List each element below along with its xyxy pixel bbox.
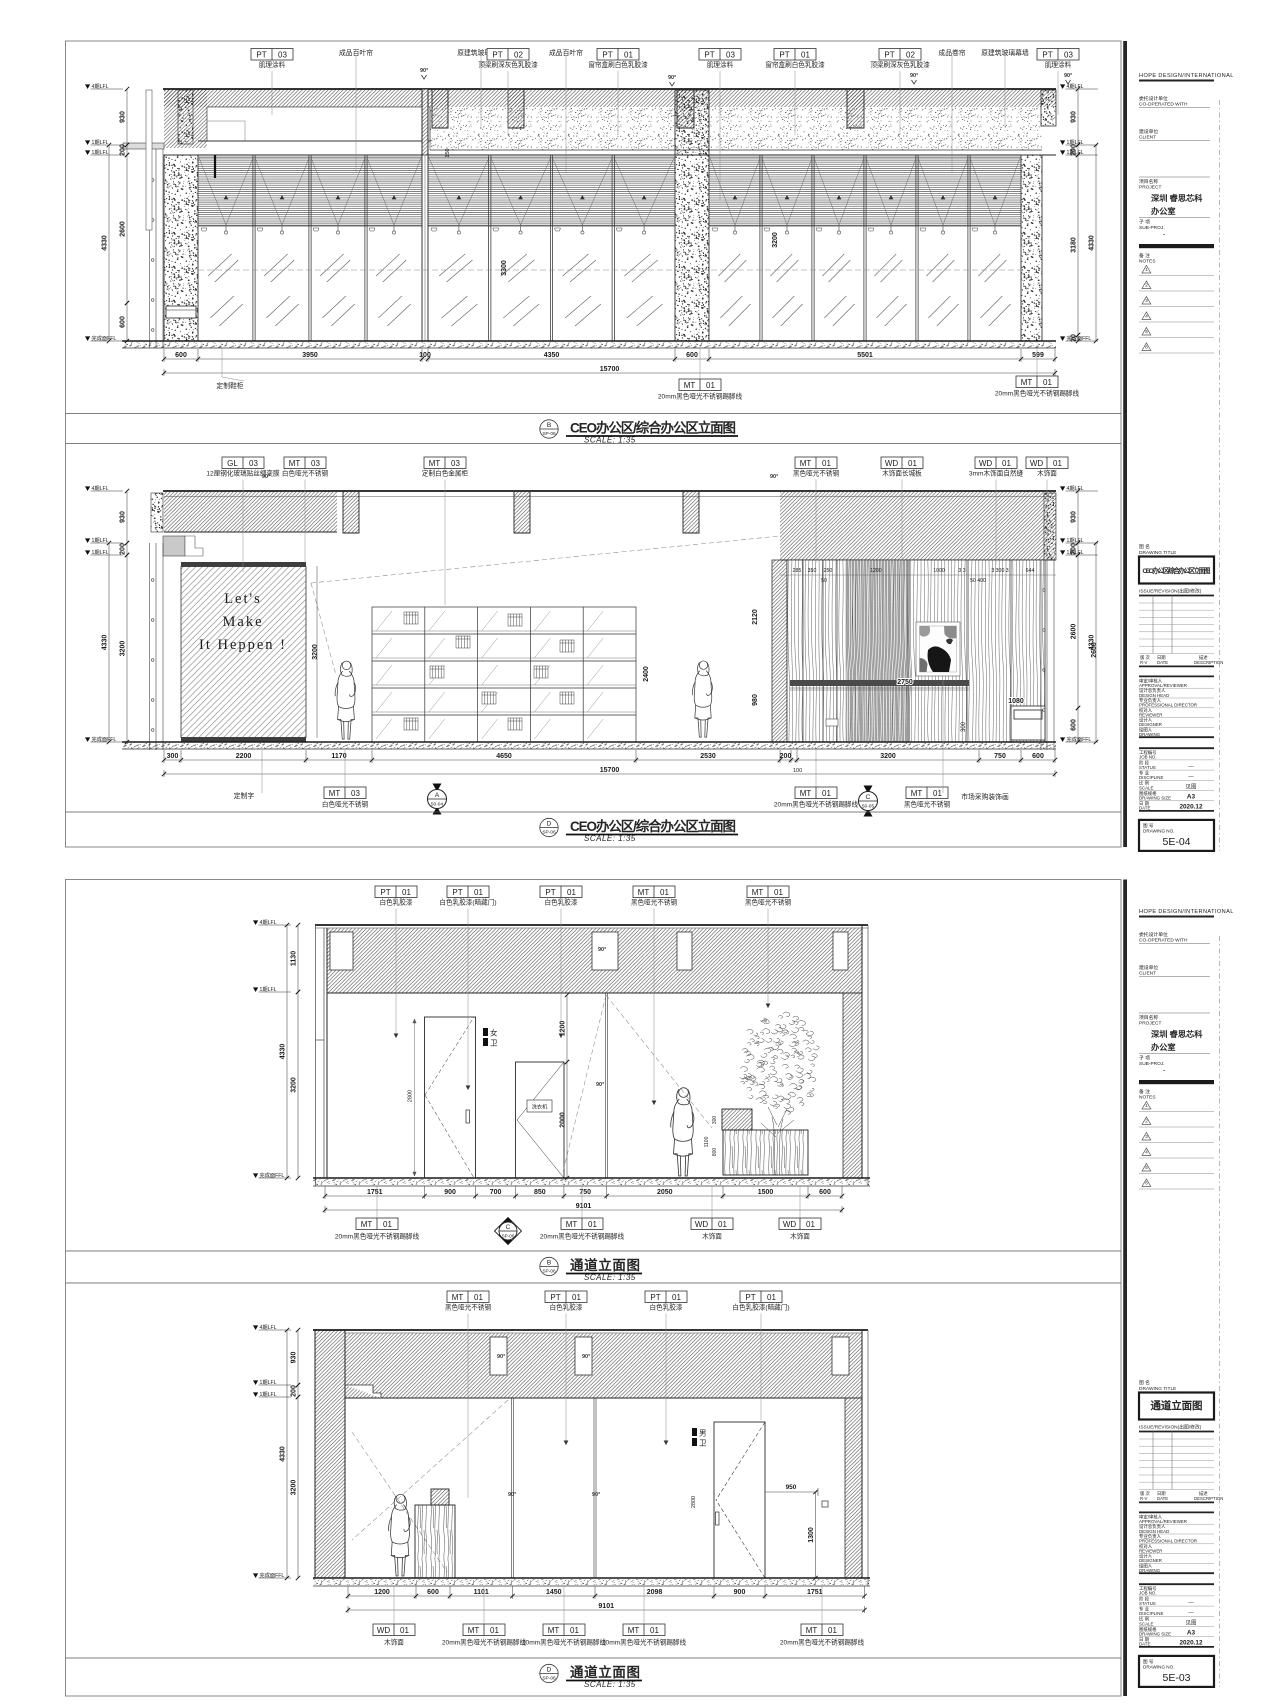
svg-text:PT: PT (452, 888, 462, 897)
svg-text:5501: 5501 (857, 352, 873, 359)
svg-text:3mm木饰面自然缝: 3mm木饰面自然缝 (969, 469, 1024, 478)
svg-text:洗衣机: 洗衣机 (532, 1103, 548, 1111)
svg-text:01: 01 (402, 888, 411, 897)
svg-text:DISCIPLINE: DISCIPLINE (1139, 775, 1163, 780)
svg-text:90°: 90° (262, 474, 270, 480)
svg-text:2800: 2800 (408, 1090, 414, 1102)
svg-text:600: 600 (819, 1189, 831, 1196)
svg-text:PT: PT (745, 1293, 755, 1302)
svg-text:SP-06: SP-06 (542, 1269, 556, 1275)
svg-text:卫: 卫 (699, 1439, 707, 1448)
svg-text:3200: 3200 (291, 1077, 298, 1093)
svg-text:2050: 2050 (657, 1189, 673, 1196)
svg-text:20mm黑色哑光不锈钢踢脚线: 20mm黑色哑光不锈钢踢脚线 (780, 1638, 865, 1647)
svg-text:顶梁刷深灰色乳胶漆: 顶梁刷深灰色乳胶漆 (870, 60, 930, 69)
svg-text:B: B (547, 422, 551, 429)
svg-text:90°: 90° (582, 1354, 590, 1360)
svg-text:MT: MT (452, 1293, 464, 1302)
svg-text:PT: PT (545, 888, 555, 897)
svg-text:01: 01 (588, 1220, 597, 1229)
svg-text:MT: MT (548, 1626, 560, 1635)
svg-text:定制鞋柜: 定制鞋柜 (216, 381, 243, 390)
svg-text:DESCRIPTION: DESCRIPTION (1194, 1496, 1223, 1501)
svg-text:2098: 2098 (647, 1589, 663, 1596)
svg-text:DRAWING TITLE: DRAWING TITLE (1139, 1386, 1176, 1392)
svg-text:600: 600 (1071, 719, 1078, 731)
svg-text:MT: MT (638, 888, 650, 897)
svg-text:DATE: DATE (1139, 806, 1150, 811)
svg-text:01: 01 (706, 381, 715, 390)
svg-text:950: 950 (786, 1484, 797, 1491)
svg-text:01: 01 (567, 888, 576, 897)
svg-text:NOTES: NOTES (1139, 259, 1156, 265)
svg-text:子 项: 子 项 (1139, 1055, 1150, 1062)
svg-text:ISSUE/REVISION(出图/修改): ISSUE/REVISION(出图/修改) (1139, 588, 1202, 595)
svg-text:900: 900 (444, 1189, 456, 1196)
svg-text:01: 01 (570, 1626, 579, 1635)
svg-text:20mm黑色哑光不锈钢踢脚线: 20mm黑色哑光不锈钢踢脚线 (442, 1638, 527, 1647)
svg-text:DESCRIPTION: DESCRIPTION (1194, 660, 1223, 665)
svg-text:DRAWING NO.: DRAWING NO. (1143, 828, 1174, 833)
svg-text:2120: 2120 (752, 609, 759, 625)
svg-text:03: 03 (726, 50, 735, 59)
svg-text:办公室: 办公室 (1151, 1042, 1176, 1052)
svg-text:4650: 4650 (496, 753, 512, 760)
svg-text:肌理涂料: 肌理涂料 (707, 60, 734, 69)
svg-text:HOPE DESIGN/INTERNATIONAL: HOPE DESIGN/INTERNATIONAL (1139, 73, 1234, 79)
svg-text:01: 01 (822, 459, 831, 468)
svg-text:3200: 3200 (772, 232, 779, 248)
svg-text:4350: 4350 (544, 352, 560, 359)
svg-text:2600: 2600 (120, 221, 127, 237)
svg-text:01: 01 (672, 1293, 681, 1302)
svg-text:黑色哑光不锈钢: 黑色哑光不锈钢 (631, 898, 678, 907)
svg-text:委托设计单位: 委托设计单位 (1139, 95, 1168, 102)
svg-text:WD: WD (783, 1220, 797, 1229)
svg-text:200: 200 (120, 144, 127, 156)
svg-text:03: 03 (351, 789, 360, 798)
svg-text:白色乳胶漆(暗藏门): 白色乳胶漆(暗藏门) (439, 898, 496, 907)
svg-text:3300: 3300 (501, 260, 508, 276)
svg-text:01: 01 (774, 888, 783, 897)
svg-text:930: 930 (291, 1352, 298, 1364)
svg-text:200: 200 (1071, 144, 1078, 156)
svg-text:卫: 卫 (490, 1039, 498, 1048)
svg-text:项目名称: 项目名称 (1139, 178, 1158, 185)
svg-text:通道立面图: 通道立面图 (570, 1257, 640, 1273)
svg-text:木饰面长城板: 木饰面长城板 (882, 469, 922, 478)
svg-text:通道立面图: 通道立面图 (570, 1664, 640, 1680)
svg-text:930: 930 (1071, 511, 1078, 523)
svg-text:20mm黑色哑光不锈钢踢脚线: 20mm黑色哑光不锈钢踢脚线 (540, 1232, 625, 1241)
svg-text:DRAWING SIZE: DRAWING SIZE (1139, 796, 1171, 801)
svg-text:B: B (547, 1260, 551, 1267)
svg-text:CO-OPERATED WITH: CO-OPERATED WITH (1139, 102, 1188, 108)
svg-text:白色哑光不锈钢: 白色哑光不锈钢 (322, 800, 369, 809)
svg-text:1500: 1500 (758, 1189, 774, 1196)
svg-text:白色乳胶漆(暗藏门): 白色乳胶漆(暗藏门) (732, 1303, 789, 1312)
svg-text:01: 01 (822, 789, 831, 798)
svg-text:20mm黑色哑光不锈钢踢脚线: 20mm黑色哑光不锈钢踢脚线 (774, 800, 859, 809)
svg-text:01: 01 (400, 1626, 409, 1635)
svg-text:SUB-PROJ.: SUB-PROJ. (1139, 1061, 1165, 1067)
svg-text:01: 01 (1053, 459, 1062, 468)
svg-text:PT: PT (602, 50, 612, 59)
svg-text:4330: 4330 (280, 1044, 287, 1060)
svg-text:DRAWING: DRAWING (1139, 732, 1161, 737)
svg-text:980: 980 (752, 694, 759, 706)
svg-text:01: 01 (1002, 459, 1011, 468)
svg-text:MT: MT (752, 888, 764, 897)
svg-text:150: 150 (445, 148, 451, 157)
svg-text:3200: 3200 (120, 641, 127, 657)
svg-text:—: — (1188, 1610, 1194, 1616)
svg-text:4330: 4330 (1089, 635, 1096, 651)
svg-text:1200: 1200 (374, 1589, 390, 1596)
svg-text:600: 600 (1032, 753, 1044, 760)
svg-text:01: 01 (490, 1626, 499, 1635)
svg-text:PT: PT (256, 50, 266, 59)
svg-text:—: — (1188, 774, 1194, 780)
svg-text:女: 女 (490, 1028, 498, 1038)
svg-text:285: 285 (793, 568, 802, 574)
svg-text:见图: 见图 (1186, 1618, 1197, 1626)
svg-text:通道立面图: 通道立面图 (1151, 1399, 1203, 1412)
svg-text:03: 03 (1064, 50, 1073, 59)
svg-text:01: 01 (383, 1220, 392, 1229)
svg-text:PT: PT (492, 50, 502, 59)
svg-text:2020.12: 2020.12 (1179, 804, 1203, 811)
svg-text:3 3: 3 3 (958, 568, 965, 574)
svg-text:5E-03: 5E-03 (1162, 1672, 1190, 1684)
svg-text:DATE: DATE (1139, 1642, 1150, 1647)
svg-text:01: 01 (660, 888, 669, 897)
svg-text:300: 300 (712, 1116, 718, 1125)
svg-text:1130: 1130 (291, 951, 298, 966)
svg-text:SCALE: SCALE (1139, 785, 1153, 790)
svg-text:子 项: 子 项 (1139, 219, 1150, 226)
svg-text:1170: 1170 (331, 753, 346, 760)
svg-text:男: 男 (699, 1429, 707, 1438)
svg-text:C: C (866, 794, 871, 801)
svg-text:项目名称: 项目名称 (1139, 1014, 1158, 1021)
svg-text:15700: 15700 (600, 366, 620, 373)
svg-text:白色乳胶漆: 白色乳胶漆 (545, 898, 578, 907)
svg-text:4330: 4330 (102, 635, 109, 651)
svg-text:建设单位: 建设单位 (1139, 964, 1158, 971)
svg-text:01: 01 (572, 1293, 581, 1302)
svg-text:市场采购装饰画: 市场采购装饰画 (961, 792, 1009, 801)
svg-text:—: — (1188, 764, 1194, 770)
svg-text:PT: PT (550, 1293, 560, 1302)
svg-text:MT: MT (289, 459, 301, 468)
svg-text:20: 20 (1071, 334, 1078, 342)
svg-text:深圳 睿思芯科: 深圳 睿思芯科 (1151, 1029, 1203, 1039)
svg-text:SP-06: SP-06 (502, 1234, 515, 1239)
svg-text:SP-06: SP-06 (542, 431, 556, 437)
svg-text:黑色哑光不锈钢: 黑色哑光不锈钢 (904, 800, 951, 809)
svg-text:3950: 3950 (302, 352, 318, 359)
svg-text:SUB-PROJ.: SUB-PROJ. (1139, 225, 1165, 231)
svg-text:SCALE: SCALE (1139, 1621, 1153, 1626)
svg-text:STATUS: STATUS (1139, 765, 1156, 770)
svg-text:A3: A3 (1187, 794, 1196, 801)
svg-text:PT: PT (380, 888, 390, 897)
svg-text:02: 02 (514, 50, 523, 59)
svg-text:ISSUE/REVISION(出图/修改): ISSUE/REVISION(出图/修改) (1139, 1424, 1202, 1431)
svg-text:顶梁刷深灰色乳胶漆: 顶梁刷深灰色乳胶漆 (478, 60, 538, 69)
svg-text:见图: 见图 (1186, 782, 1197, 790)
svg-text:DRAWING NO.: DRAWING NO. (1143, 1664, 1174, 1669)
svg-text:01: 01 (801, 50, 810, 59)
svg-text:黑色哑光不锈钢: 黑色哑光不锈钢 (793, 469, 840, 478)
svg-text:WD: WD (1030, 459, 1044, 468)
svg-text:备 注: 备 注 (1139, 252, 1150, 259)
svg-text:15700: 15700 (600, 767, 620, 774)
svg-text:2800: 2800 (691, 1496, 697, 1508)
svg-text:—: — (1188, 1600, 1194, 1606)
svg-text:A: A (435, 792, 440, 799)
svg-text:MT: MT (429, 459, 441, 468)
svg-text:1751: 1751 (367, 1189, 383, 1196)
svg-text:90°: 90° (592, 1492, 600, 1498)
svg-text:2530: 2530 (700, 753, 716, 760)
svg-text:DRAWING TITLE: DRAWING TITLE (1139, 550, 1176, 556)
svg-text:300: 300 (167, 753, 179, 760)
svg-text:9101: 9101 (576, 1203, 592, 1210)
svg-text:20mm黑色哑光不锈钢踢脚线: 20mm黑色哑光不锈钢踢脚线 (658, 392, 743, 401)
svg-text:930: 930 (120, 111, 127, 123)
svg-text:4330: 4330 (280, 1446, 287, 1462)
svg-text:20mm黑色哑光不锈钢踢脚线: 20mm黑色哑光不锈钢踢脚线 (995, 389, 1080, 398)
svg-text:DATE: DATE (1157, 660, 1168, 665)
svg-text:MT: MT (329, 789, 341, 798)
svg-text:750: 750 (579, 1189, 591, 1196)
svg-text:50-04: 50-04 (431, 802, 444, 808)
svg-text:PROJECT: PROJECT (1139, 185, 1161, 191)
svg-text:90°: 90° (596, 1082, 604, 1088)
svg-text:1000: 1000 (933, 568, 945, 574)
svg-text:90°: 90° (668, 75, 676, 81)
svg-text:3 300 3: 3 300 3 (991, 568, 1008, 574)
svg-text:1200: 1200 (870, 568, 882, 574)
svg-text:1751: 1751 (807, 1589, 823, 1596)
svg-text:200: 200 (120, 543, 127, 555)
svg-text:700: 700 (490, 1189, 502, 1196)
svg-text:CEO办公区/综合办公区立面图: CEO办公区/综合办公区立面图 (570, 420, 736, 436)
svg-text:白色哑光不锈钢: 白色哑光不锈钢 (282, 469, 329, 478)
svg-text:644: 644 (1026, 568, 1035, 574)
svg-text:50-05: 50-05 (862, 804, 875, 810)
svg-text:MT: MT (628, 1626, 640, 1635)
svg-text:MT: MT (566, 1220, 578, 1229)
svg-text:定制字: 定制字 (234, 791, 255, 800)
svg-text:Let's: Let's (224, 591, 262, 607)
svg-text:900: 900 (734, 1589, 746, 1596)
svg-text:03: 03 (278, 50, 287, 59)
svg-text:HOPE DESIGN/INTERNATIONAL: HOPE DESIGN/INTERNATIONAL (1139, 909, 1234, 915)
svg-text:建设单位: 建设单位 (1139, 128, 1158, 135)
svg-text:WD: WD (979, 459, 993, 468)
svg-text:肌理涂料: 肌理涂料 (259, 60, 286, 69)
svg-text:STATUS: STATUS (1139, 1601, 1156, 1606)
svg-text:MT: MT (800, 459, 812, 468)
svg-text:750: 750 (994, 753, 1006, 760)
svg-text:CLIENT: CLIENT (1139, 135, 1156, 141)
svg-text:C: C (506, 1224, 511, 1231)
svg-text:2000: 2000 (560, 1112, 567, 1128)
svg-text:MT: MT (911, 789, 923, 798)
svg-text:图 名: 图 名 (1139, 543, 1150, 550)
svg-text:90°: 90° (420, 68, 428, 74)
svg-text:Make: Make (222, 614, 263, 630)
svg-text:木饰面: 木饰面 (1037, 469, 1057, 478)
svg-text:600: 600 (175, 352, 187, 359)
svg-text:01: 01 (767, 1293, 776, 1302)
svg-text:PT: PT (650, 1293, 660, 1302)
svg-text:PROJECT: PROJECT (1139, 1021, 1161, 1027)
svg-text:600: 600 (120, 316, 127, 328)
svg-text:PT: PT (704, 50, 714, 59)
svg-text:90°: 90° (910, 73, 918, 79)
svg-text:03: 03 (451, 459, 460, 468)
svg-text:20mm黑色哑光不锈钢踢脚线: 20mm黑色哑光不锈钢踢脚线 (602, 1638, 687, 1647)
svg-text:MT: MT (684, 381, 696, 390)
svg-text:NOTES: NOTES (1139, 1095, 1156, 1101)
svg-text:850: 850 (534, 1189, 546, 1196)
svg-text:600: 600 (427, 1589, 439, 1596)
svg-text:1080: 1080 (1008, 698, 1024, 705)
svg-text:PT: PT (1042, 50, 1052, 59)
svg-text:R-V: R-V (1140, 1496, 1148, 1501)
svg-text:SP-06: SP-06 (542, 830, 556, 836)
svg-text:窗帘盒刷白色乳胶漆: 窗帘盒刷白色乳胶漆 (588, 60, 648, 69)
svg-text:4330: 4330 (102, 235, 109, 251)
svg-text:01: 01 (806, 1220, 815, 1229)
svg-text:2750: 2750 (897, 679, 913, 686)
svg-text:1450: 1450 (546, 1589, 562, 1596)
svg-text:DRAWING: DRAWING (1139, 1568, 1161, 1573)
svg-text:D: D (547, 821, 552, 828)
svg-text:CEO办公区/综合办公区立面图: CEO办公区/综合办公区立面图 (1143, 566, 1211, 575)
svg-text:JOB NO.: JOB NO. (1139, 755, 1157, 760)
svg-text:PT: PT (779, 50, 789, 59)
svg-text:2200: 2200 (236, 753, 252, 760)
svg-text:白色乳胶漆: 白色乳胶漆 (550, 1303, 583, 1312)
svg-text:1101: 1101 (474, 1589, 489, 1596)
svg-text:3180: 3180 (1071, 237, 1078, 253)
svg-text:50: 50 (821, 578, 827, 584)
svg-text:800: 800 (712, 1148, 718, 1157)
svg-text:01: 01 (474, 1293, 483, 1302)
svg-text:WD: WD (695, 1220, 709, 1229)
svg-text:窗帘盒刷白色乳胶漆: 窗帘盒刷白色乳胶漆 (765, 60, 825, 69)
svg-text:CEO办公区/综合办公区立面图: CEO办公区/综合办公区立面图 (570, 818, 736, 834)
svg-text:250: 250 (824, 568, 833, 574)
svg-text:MT: MT (468, 1626, 480, 1635)
svg-text:20mm黑色哑光不锈钢踢脚线: 20mm黑色哑光不锈钢踢脚线 (522, 1638, 607, 1647)
svg-text:PT: PT (884, 50, 894, 59)
svg-text:300: 300 (961, 721, 967, 732)
svg-text:930: 930 (120, 511, 127, 523)
svg-text:200: 200 (780, 753, 792, 760)
svg-text:白色乳胶漆: 白色乳胶漆 (650, 1303, 683, 1312)
svg-text:木饰面: 木饰面 (790, 1232, 810, 1241)
svg-text:JOB NO.: JOB NO. (1139, 1591, 1157, 1596)
svg-text:03: 03 (311, 459, 320, 468)
svg-text:350: 350 (808, 568, 817, 574)
svg-text:01: 01 (650, 1626, 659, 1635)
svg-text:03: 03 (249, 459, 258, 468)
svg-text:DISCIPLINE: DISCIPLINE (1139, 1611, 1163, 1616)
svg-text:CLIENT: CLIENT (1139, 971, 1156, 977)
svg-text:D: D (547, 1667, 552, 1674)
svg-text:01: 01 (1043, 378, 1052, 387)
svg-text:3200: 3200 (312, 644, 319, 660)
svg-text:备 注: 备 注 (1139, 1088, 1150, 1095)
svg-text:木饰面: 木饰面 (384, 1638, 404, 1647)
svg-text:9101: 9101 (598, 1603, 614, 1610)
svg-text:SCALE: 1:35: SCALE: 1:35 (584, 834, 636, 843)
svg-text:01: 01 (828, 1626, 837, 1635)
svg-text:R-V: R-V (1140, 660, 1148, 665)
svg-text:委托设计单位: 委托设计单位 (1139, 931, 1168, 938)
svg-text:90°: 90° (598, 947, 606, 953)
svg-text:WD: WD (377, 1626, 391, 1635)
svg-text:930: 930 (1071, 111, 1078, 123)
svg-text:2020.12: 2020.12 (1179, 1640, 1203, 1647)
svg-text:定制白色金属柜: 定制白色金属柜 (422, 469, 469, 478)
svg-text:90°: 90° (508, 1492, 516, 1498)
svg-text:DATE: DATE (1157, 1496, 1168, 1501)
svg-text:SP-06: SP-06 (542, 1676, 556, 1682)
svg-text:GL: GL (227, 459, 238, 468)
svg-text:WD: WD (885, 459, 899, 468)
svg-text:20mm黑色哑光不锈钢踢脚线: 20mm黑色哑光不锈钢踢脚线 (335, 1232, 420, 1241)
svg-text:01: 01 (908, 459, 917, 468)
svg-text:DRAWING SIZE: DRAWING SIZE (1139, 1632, 1171, 1637)
svg-text:MT: MT (806, 1626, 818, 1635)
svg-text:90°: 90° (497, 1354, 505, 1360)
svg-text:It Heppen !: It Heppen ! (199, 637, 287, 653)
svg-text:01: 01 (624, 50, 633, 59)
svg-text:2400: 2400 (643, 666, 650, 682)
svg-text:SCALE: 1:35: SCALE: 1:35 (584, 1680, 636, 1689)
svg-text:MT: MT (1021, 378, 1033, 387)
svg-text:MT: MT (800, 789, 812, 798)
svg-text:A3: A3 (1187, 1630, 1196, 1637)
svg-text:3200: 3200 (291, 1480, 298, 1496)
svg-text:白色乳胶漆: 白色乳胶漆 (380, 898, 413, 907)
svg-text:木饰面: 木饰面 (702, 1232, 722, 1241)
svg-text:3200: 3200 (880, 753, 896, 760)
svg-text:02: 02 (906, 50, 915, 59)
svg-text:200: 200 (1071, 543, 1078, 555)
svg-text:黑色哑光不锈钢: 黑色哑光不锈钢 (745, 898, 792, 907)
svg-text:MT: MT (361, 1220, 373, 1229)
svg-text:600: 600 (686, 352, 698, 359)
svg-text:图 名: 图 名 (1139, 1379, 1150, 1386)
svg-text:SCALE: 1:35: SCALE: 1:35 (584, 1273, 636, 1282)
svg-text:2600: 2600 (1071, 624, 1078, 640)
svg-text:黑色哑光不锈钢: 黑色哑光不锈钢 (445, 1303, 492, 1312)
svg-text:1300: 1300 (808, 1527, 815, 1543)
svg-text:4330: 4330 (1089, 235, 1096, 251)
svg-text:50 400: 50 400 (970, 578, 986, 584)
svg-text:100: 100 (793, 768, 802, 774)
svg-text:100: 100 (419, 352, 431, 359)
svg-text:90°: 90° (1064, 73, 1072, 79)
